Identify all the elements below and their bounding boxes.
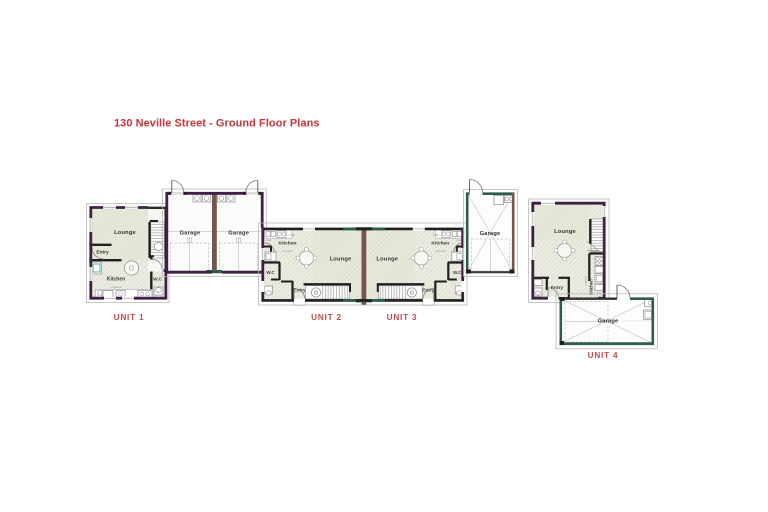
svg-text:cupd: cupd	[266, 238, 272, 242]
svg-text:DW: DW	[433, 233, 438, 237]
svg-text:DW: DW	[290, 233, 295, 237]
svg-text:cupboard: cupboard	[585, 275, 588, 286]
svg-text:Garage: Garage	[180, 231, 201, 237]
svg-text:UNIT 2: UNIT 2	[311, 313, 342, 322]
svg-text:cupboard: cupboard	[282, 249, 293, 253]
svg-text:UNIT 4: UNIT 4	[588, 351, 619, 360]
svg-text:FG: FG	[98, 293, 102, 297]
svg-text:cupboard: cupboard	[111, 285, 122, 289]
svg-text:Garage: Garage	[480, 231, 501, 237]
svg-text:Lounge: Lounge	[376, 257, 398, 263]
svg-text:130 Neville Street - Ground Fl: 130 Neville Street - Ground Floor Plans	[114, 118, 320, 130]
svg-text:Garage: Garage	[598, 319, 619, 325]
svg-text:Kitchen: Kitchen	[431, 241, 449, 247]
svg-text:Entry: Entry	[96, 250, 109, 256]
svg-text:W.C: W.C	[153, 277, 162, 282]
svg-text:Entry: Entry	[551, 285, 564, 291]
svg-text:Lounge: Lounge	[554, 229, 576, 235]
svg-text:Lounge: Lounge	[330, 257, 352, 263]
svg-text:UNIT 1: UNIT 1	[114, 313, 145, 322]
svg-text:UNIT 3: UNIT 3	[387, 313, 418, 322]
svg-text:Lounge: Lounge	[114, 230, 136, 236]
svg-text:W.C: W.C	[266, 270, 275, 275]
svg-text:Kitchen: Kitchen	[588, 279, 593, 295]
svg-text:Garage: Garage	[228, 231, 249, 237]
svg-text:Kitchen: Kitchen	[279, 241, 297, 247]
svg-text:W.C: W.C	[453, 270, 462, 275]
svg-text:cupboard: cupboard	[435, 249, 446, 253]
svg-text:Kitchen: Kitchen	[107, 277, 125, 283]
